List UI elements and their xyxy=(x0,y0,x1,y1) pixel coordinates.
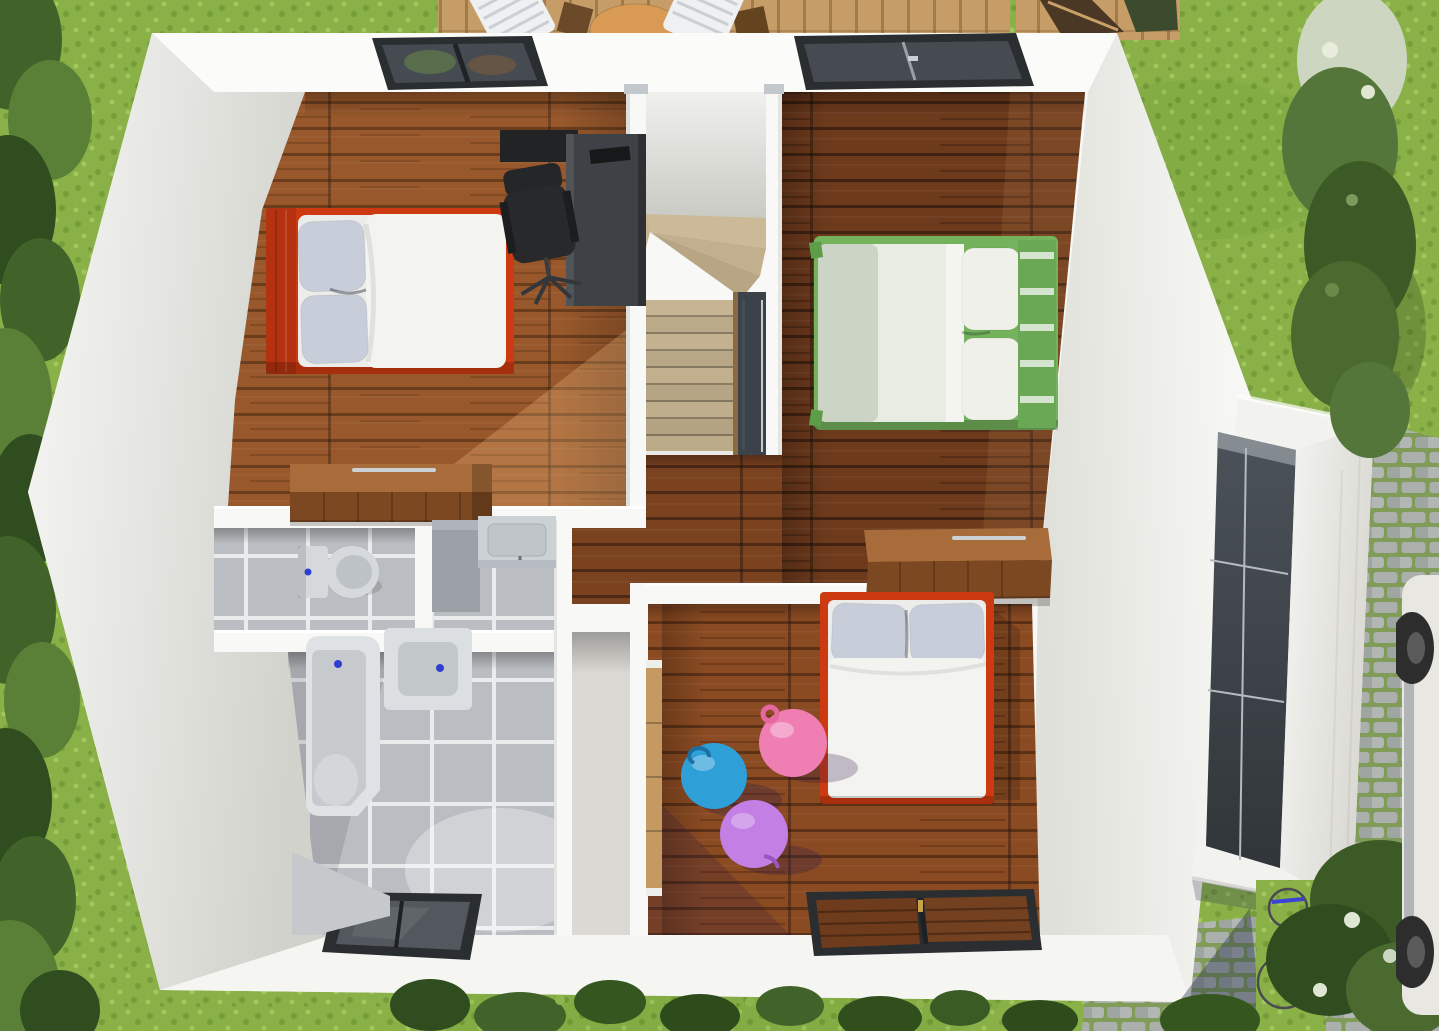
headboard-green xyxy=(1018,240,1056,428)
handle xyxy=(352,468,436,472)
toilet xyxy=(298,546,382,598)
flush-button xyxy=(305,569,312,576)
floorplan-render xyxy=(0,0,1439,1031)
stair-ceiling xyxy=(646,92,766,232)
pillow xyxy=(962,338,1020,420)
bathtub xyxy=(306,636,380,816)
ball-purple xyxy=(720,800,788,868)
drain xyxy=(334,660,342,668)
handle xyxy=(952,536,1026,540)
vanity-cabinet xyxy=(432,520,480,612)
dresser-northwest xyxy=(290,464,492,526)
sheet-fold xyxy=(946,244,964,422)
corridor-closet-floor xyxy=(572,632,630,935)
roof-window-northwest xyxy=(372,36,548,90)
wall-kids-west xyxy=(630,583,648,935)
sliding-wardrobe xyxy=(646,660,662,896)
stair-stringer xyxy=(733,292,738,455)
pillow xyxy=(909,603,985,664)
roof-window-kids xyxy=(806,889,1042,956)
washbasin xyxy=(384,628,472,710)
roof-window-northeast xyxy=(794,33,1034,90)
duvet xyxy=(828,658,986,798)
wall-cap xyxy=(764,84,784,94)
garage-annex xyxy=(1192,396,1374,910)
house xyxy=(28,33,1252,1002)
floorplan-svg xyxy=(0,0,1439,1031)
stair-steps xyxy=(646,300,738,455)
pillow xyxy=(831,603,907,664)
double-bed-red xyxy=(266,208,514,374)
pillow xyxy=(962,248,1020,330)
duvet xyxy=(366,214,506,368)
wall-corridor-north xyxy=(572,604,630,632)
drain xyxy=(436,664,444,672)
wall-wc-east xyxy=(415,528,432,630)
wall-cap xyxy=(624,84,648,94)
double-bed-green xyxy=(809,236,1058,430)
